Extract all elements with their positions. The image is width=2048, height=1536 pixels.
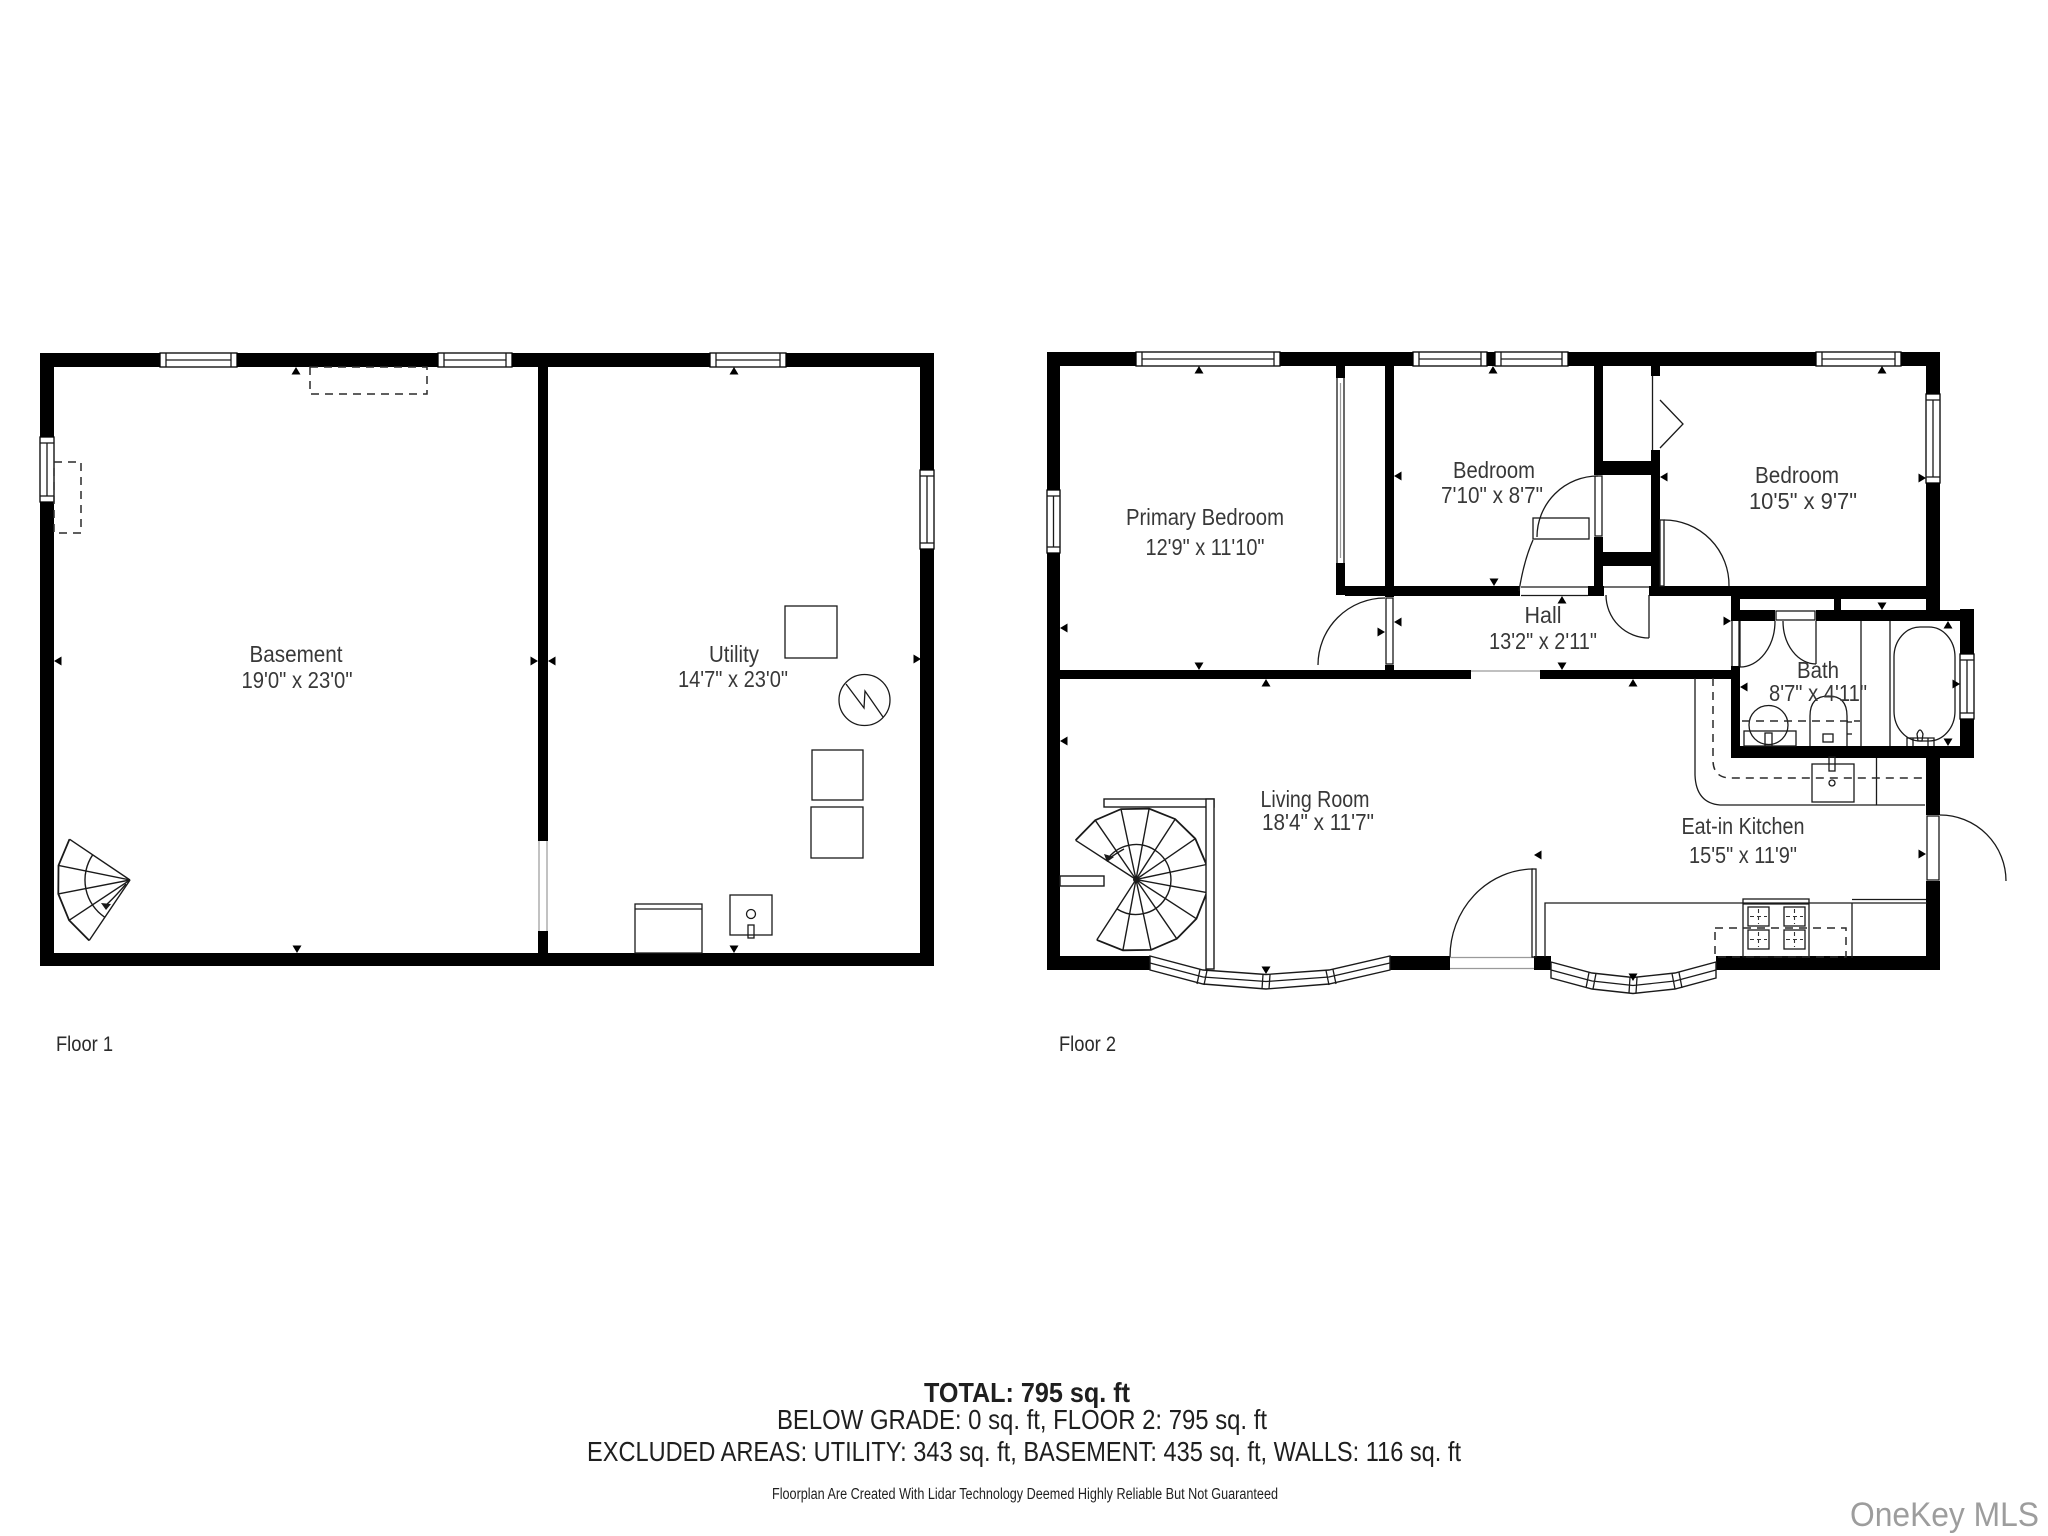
svg-text:10'5" x 9'7": 10'5" x 9'7" <box>1749 488 1857 514</box>
svg-text:15'5" x 11'9": 15'5" x 11'9" <box>1689 842 1797 868</box>
svg-text:EXCLUDED AREAS: UTILITY: 343 s: EXCLUDED AREAS: UTILITY: 343 sq. ft, BAS… <box>587 1436 1461 1467</box>
svg-text:14'7" x 23'0": 14'7" x 23'0" <box>678 666 788 692</box>
svg-text:Hall: Hall <box>1525 602 1562 628</box>
svg-text:Bedroom: Bedroom <box>1453 457 1535 483</box>
svg-text:Floor 1: Floor 1 <box>56 1033 113 1056</box>
svg-text:Primary Bedroom: Primary Bedroom <box>1126 504 1284 530</box>
svg-text:Floorplan Are Created With Lid: Floorplan Are Created With Lidar Technol… <box>772 1486 1278 1503</box>
svg-text:Floor 2: Floor 2 <box>1059 1033 1116 1056</box>
svg-text:Utility: Utility <box>709 641 759 667</box>
svg-text:19'0" x 23'0": 19'0" x 23'0" <box>242 667 353 693</box>
svg-text:Basement: Basement <box>250 641 344 667</box>
svg-text:BELOW GRADE: 0 sq. ft, FLOOR 2: BELOW GRADE: 0 sq. ft, FLOOR 2: 795 sq. … <box>777 1404 1267 1435</box>
svg-text:7'10" x 8'7": 7'10" x 8'7" <box>1441 482 1543 508</box>
svg-text:18'4" x 11'7": 18'4" x 11'7" <box>1262 809 1374 835</box>
svg-text:OneKey MLS: OneKey MLS <box>1850 1496 2039 1534</box>
svg-text:8'7" x 4'11": 8'7" x 4'11" <box>1769 680 1867 706</box>
svg-text:12'9" x 11'10": 12'9" x 11'10" <box>1146 534 1265 560</box>
svg-text:Eat-in Kitchen: Eat-in Kitchen <box>1682 813 1805 839</box>
svg-text:13'2" x 2'11": 13'2" x 2'11" <box>1489 628 1597 654</box>
svg-text:Bedroom: Bedroom <box>1755 462 1839 488</box>
